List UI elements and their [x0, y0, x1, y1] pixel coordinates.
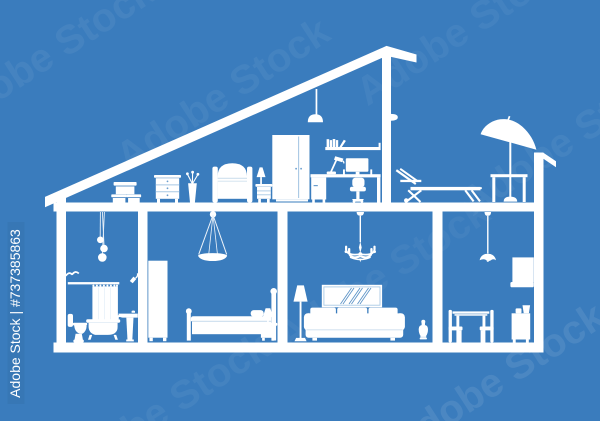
svg-text:Adobe Stock | #737385863: Adobe Stock | #737385863: [7, 229, 23, 398]
